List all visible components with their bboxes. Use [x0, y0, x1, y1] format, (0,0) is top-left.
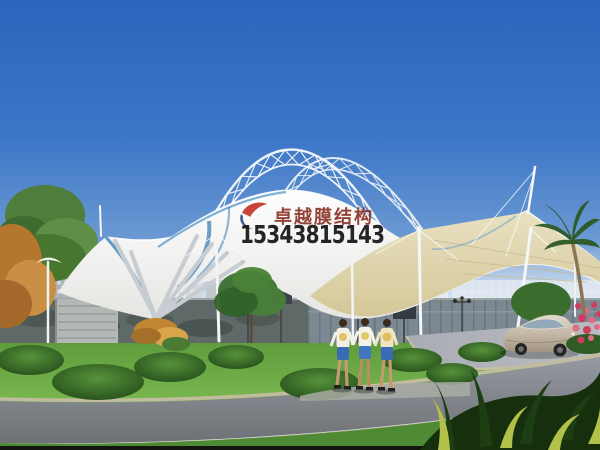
- mast: [352, 251, 353, 342]
- mast: [419, 228, 421, 343]
- rendering-scene: [0, 0, 600, 450]
- left-spire: [100, 206, 101, 236]
- architectural-rendering: 卓越膜结构 15343815143: [0, 0, 600, 450]
